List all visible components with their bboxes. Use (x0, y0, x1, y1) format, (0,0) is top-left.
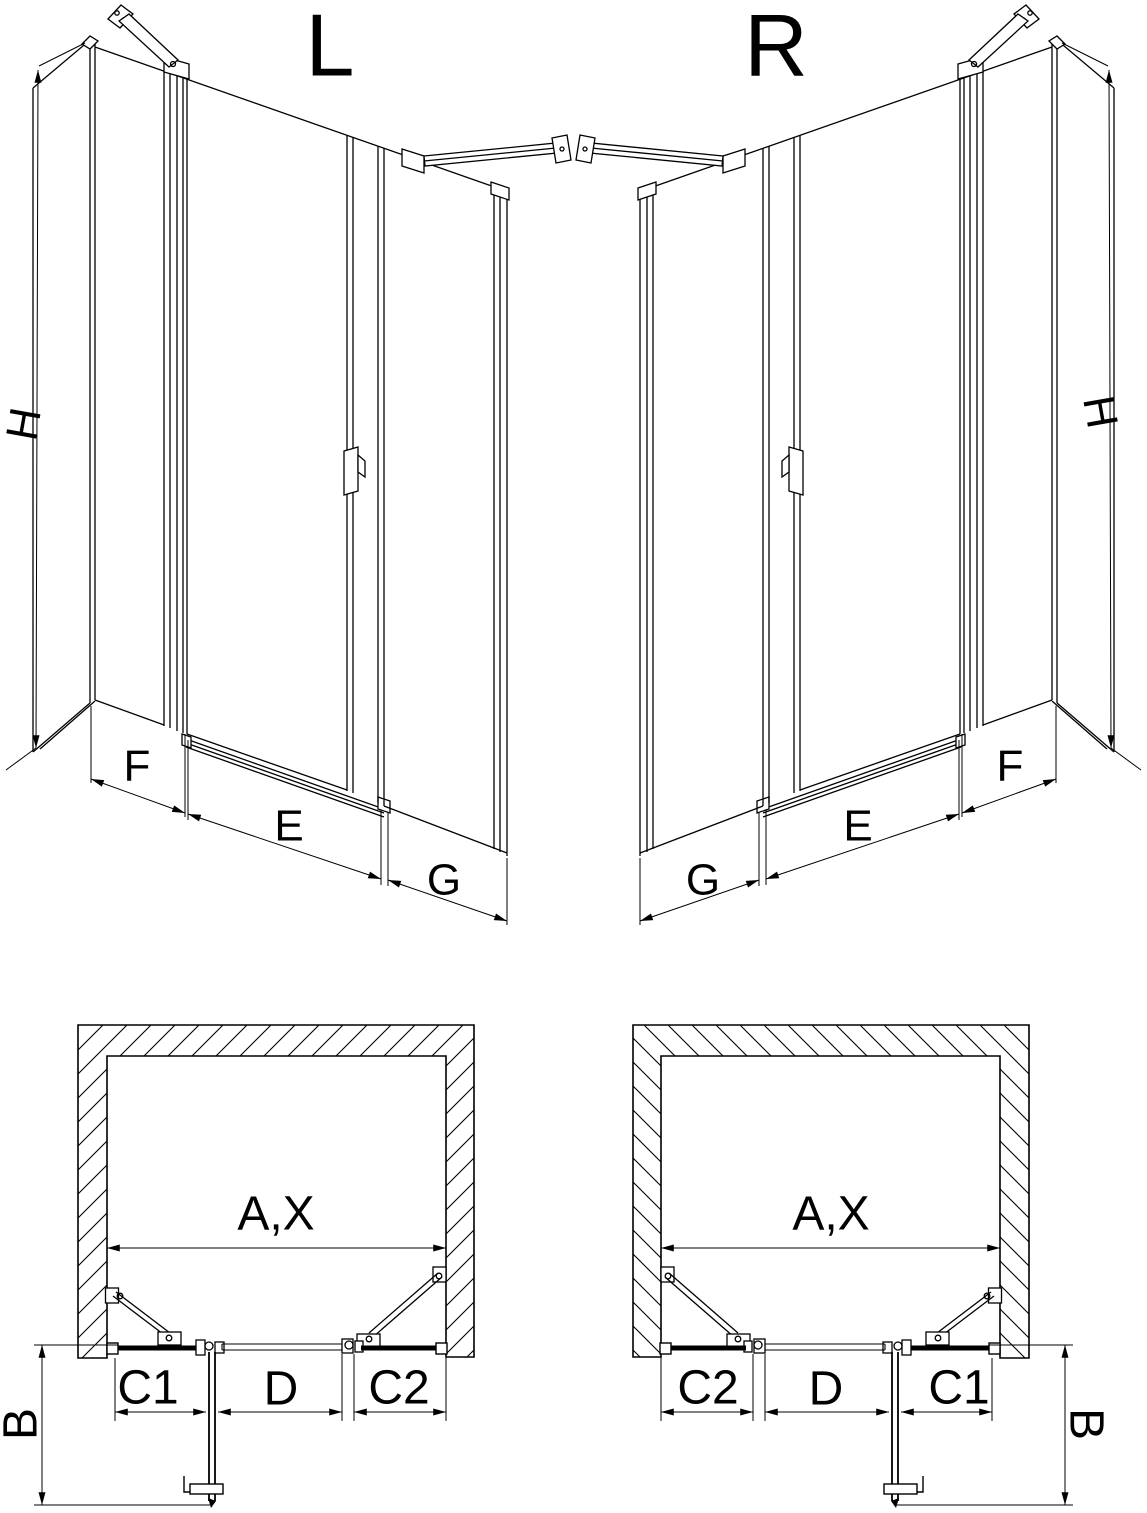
plan-segment-label-left-3: C2 (368, 1362, 429, 1415)
segment-dim-label-left-2: E (274, 802, 303, 851)
variant-label-left: L (306, 0, 355, 95)
segment-dim-label-left-1: F (124, 742, 151, 791)
height-dim-label-left: H (0, 404, 51, 444)
depth-dim-label-left: B (0, 1408, 48, 1440)
plan-segment-label-right-3: C1 (928, 1362, 989, 1415)
segment-dim-label-left-3: G (427, 856, 461, 905)
plan-segment-label-right-2: D (809, 1363, 844, 1416)
plan-segment-label-left-1: C1 (117, 1362, 178, 1415)
technical-drawing-page: L H F E G R H G E F A,X C1 D C2 B A,X C2… (0, 0, 1147, 1513)
plan-right-labels: A,X C2 D C1 B (677, 1188, 1112, 1441)
plan-drawing-right (633, 1025, 1073, 1508)
height-dim-label-right: H (1073, 392, 1127, 432)
segment-dim-label-right-2: E (843, 802, 872, 851)
plan-drawing-left (34, 1025, 474, 1508)
variant-label-right: R (744, 0, 808, 95)
overall-width-label-left: A,X (237, 1188, 314, 1241)
perspective-left-labels: L H F E G (0, 0, 461, 905)
segment-dim-label-right-3: F (997, 742, 1024, 791)
depth-dim-label-right: B (1060, 1408, 1113, 1440)
segment-dim-label-right-1: G (686, 856, 720, 905)
perspective-drawing-right (576, 5, 1141, 925)
perspective-drawing-left (6, 5, 571, 925)
plan-segment-label-left-2: D (264, 1363, 299, 1416)
perspective-right-labels: R H G E F (686, 0, 1127, 905)
diagram-canvas: L H F E G R H G E F A,X C1 D C2 B A,X C2… (0, 0, 1147, 1513)
plan-segment-label-right-1: C2 (677, 1362, 738, 1415)
overall-width-label-right: A,X (792, 1188, 869, 1241)
